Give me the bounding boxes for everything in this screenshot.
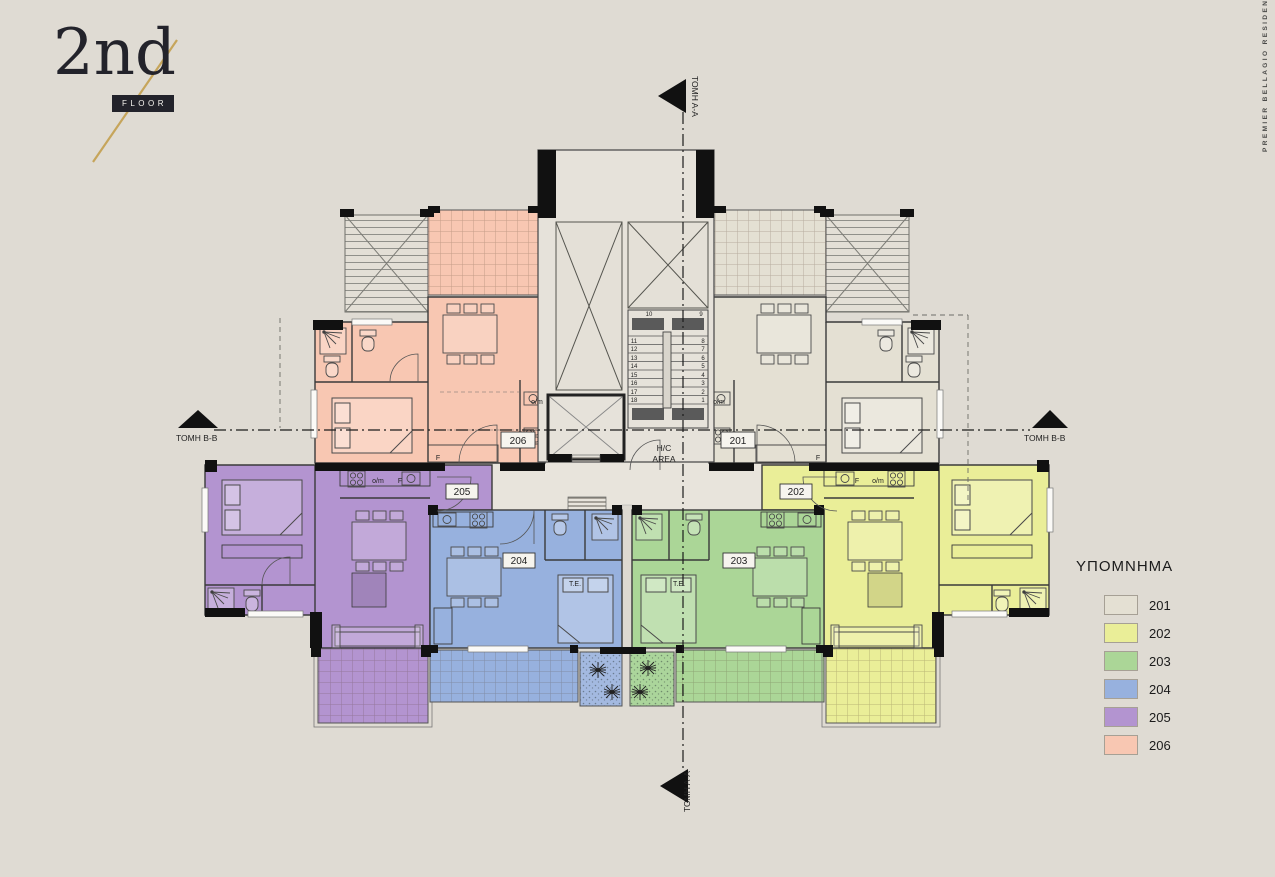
apartment-204 — [430, 510, 622, 648]
svg-text:T.E.: T.E. — [569, 581, 581, 588]
legend-item-205: 205 — [1104, 707, 1266, 727]
unit-label-206: 206 — [501, 432, 535, 448]
planters — [580, 652, 674, 706]
core: 10 9 11 12 13 14 15 16 17 18 8 7 6 5 4 3… — [538, 150, 714, 462]
svg-text:17: 17 — [631, 390, 638, 396]
svg-text:F: F — [436, 455, 440, 462]
legend-swatch-202 — [1105, 624, 1138, 643]
svg-text:13: 13 — [631, 356, 638, 362]
page: 10 9 11 12 13 14 15 16 17 18 8 7 6 5 4 3… — [0, 0, 1275, 877]
section-marker-aa-top: TOMH A-A — [658, 76, 700, 117]
svg-text:o/m: o/m — [713, 399, 725, 406]
svg-text:10: 10 — [646, 312, 653, 318]
legend-item-204: 204 — [1104, 679, 1266, 699]
unit-label-205: 205 — [446, 484, 478, 499]
section-marker-bb-right: TOMH B-B — [1024, 410, 1068, 443]
unit-label-202: 202 — [780, 484, 812, 499]
legend-swatch-203 — [1105, 652, 1138, 671]
staircase: 10 9 11 12 13 14 15 16 17 18 8 7 6 5 4 3… — [628, 310, 708, 428]
apartment-203 — [632, 510, 824, 648]
svg-text:F: F — [398, 478, 402, 485]
svg-text:TOMH B-B: TOMH B-B — [176, 433, 218, 443]
unit-label-201: 201 — [721, 432, 755, 448]
floor-word-badge: FLOOR — [112, 95, 174, 112]
legend-swatch-201 — [1105, 596, 1138, 615]
svg-text:TOMH A-A: TOMH A-A — [682, 771, 692, 812]
legend-item-206: 206 — [1104, 735, 1266, 755]
legend-item-203: 203 — [1104, 651, 1266, 671]
svg-text:o/m: o/m — [531, 399, 543, 406]
section-marker-bb-left: TOMH B-B — [176, 410, 218, 443]
legend-label-205: 205 — [1149, 710, 1171, 725]
svg-text:206: 206 — [510, 436, 527, 447]
svg-text:o/m: o/m — [372, 478, 384, 485]
unit-label-204: 204 — [503, 553, 535, 568]
svg-text:14: 14 — [631, 364, 638, 370]
svg-text:204: 204 — [511, 556, 528, 567]
svg-text:T.E.: T.E. — [673, 581, 685, 588]
svg-text:TOMH B-B: TOMH B-B — [1024, 433, 1066, 443]
legend-swatch-204 — [1105, 680, 1138, 699]
legend-title: ΥΠΟΜΝΗΜΑ — [1076, 558, 1266, 575]
legend-label-203: 203 — [1149, 654, 1171, 669]
legend-item-201: 201 — [1104, 595, 1266, 615]
svg-text:11: 11 — [631, 339, 638, 345]
floor-number: 2nd — [53, 20, 253, 87]
svg-text:F: F — [816, 455, 820, 462]
legend-label-204: 204 — [1149, 682, 1171, 697]
legend-swatch-205 — [1105, 708, 1138, 727]
svg-text:F: F — [855, 478, 859, 485]
svg-text:H/C: H/C — [657, 443, 672, 453]
brand-vertical-text: PREMIER BELLAGIO RESIDENCES — [1262, 12, 1269, 152]
elevator — [548, 395, 624, 462]
svg-text:202: 202 — [788, 487, 805, 498]
legend-swatch-206 — [1105, 736, 1138, 755]
section-marker-aa-bottom: TOMH A-A — [660, 769, 692, 812]
svg-text:16: 16 — [631, 381, 638, 387]
svg-text:12: 12 — [631, 347, 638, 353]
legend: ΥΠΟΜΝΗΜΑ 201 202 203 204 205 206 — [1076, 558, 1266, 763]
svg-text:201: 201 — [730, 436, 747, 447]
svg-text:AREA: AREA — [652, 454, 675, 464]
svg-text:18: 18 — [631, 398, 638, 404]
unit-label-203: 203 — [723, 553, 755, 568]
title-block: 2nd FLOOR — [53, 20, 253, 170]
legend-label-206: 206 — [1149, 738, 1171, 753]
legend-label-201: 201 — [1149, 598, 1171, 613]
svg-text:TOMH A-A: TOMH A-A — [690, 76, 700, 117]
svg-text:o/m: o/m — [872, 478, 884, 485]
svg-text:205: 205 — [454, 487, 471, 498]
legend-label-202: 202 — [1149, 626, 1171, 641]
legend-item-202: 202 — [1104, 623, 1266, 643]
svg-text:203: 203 — [731, 556, 748, 567]
svg-text:15: 15 — [631, 373, 638, 379]
